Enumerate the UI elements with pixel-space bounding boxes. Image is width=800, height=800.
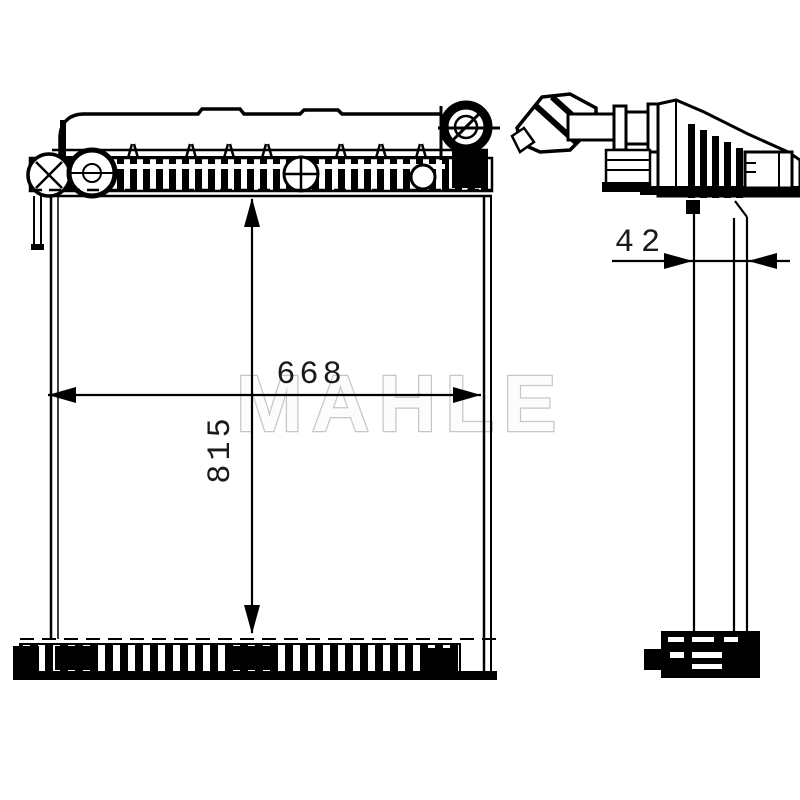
drain-pipe	[31, 196, 44, 250]
dimension-depth-42: 42	[612, 224, 790, 269]
depth-dimension-label: 42	[615, 224, 667, 261]
side-core-channel	[694, 201, 747, 632]
bottom-tank	[13, 639, 497, 680]
technical-drawing-canvas: MAHLE	[0, 0, 800, 800]
side-bottom-tank	[644, 631, 760, 678]
height-dimension-label: 815	[202, 414, 239, 484]
radiator-drawing: MAHLE	[0, 0, 800, 800]
top-tank-lid	[60, 109, 441, 164]
dimension-height-815: 815	[202, 198, 260, 634]
width-dimension-label: 668	[276, 356, 346, 393]
